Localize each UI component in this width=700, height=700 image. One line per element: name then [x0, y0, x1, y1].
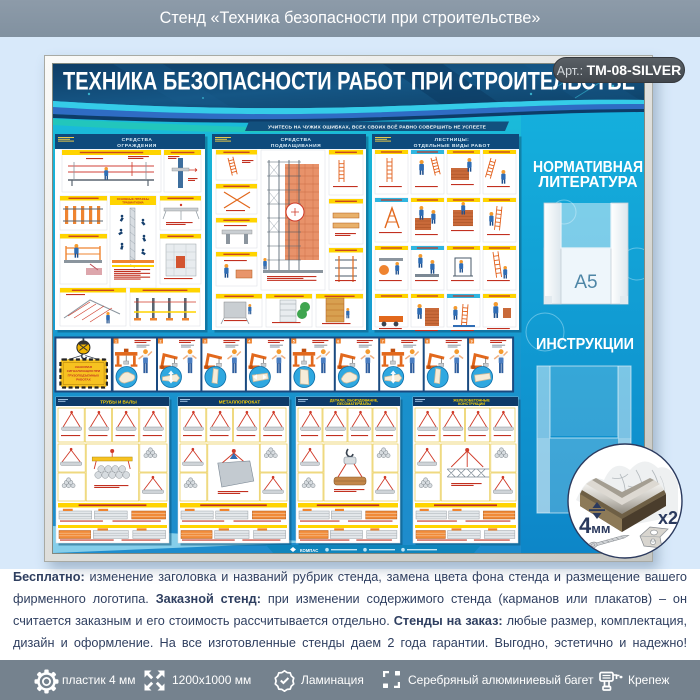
svg-text:ПОДМАЩИВАНИЯ: ПОДМАЩИВАНИЯ [271, 143, 321, 149]
svg-text:1: 1 [115, 339, 117, 343]
svg-text:КОНСТРУКЦИИ: КОНСТРУКЦИИ [458, 402, 485, 406]
svg-text:ЛЕСТНИЦЫ:: ЛЕСТНИЦЫ: [435, 137, 470, 143]
svg-text:ИНСТРУКЦИИ: ИНСТРУКЦИИ [536, 336, 634, 353]
svg-text:УЧИТЕСЬ НА ЧУЖИХ ОШИБКАХ, ВСЕХ: УЧИТЕСЬ НА ЧУЖИХ ОШИБКАХ, ВСЕХ СВОИХ ВСЁ… [268, 124, 487, 131]
svg-text:МЕТАЛЛОПРОКАТ: МЕТАЛЛОПРОКАТ [219, 399, 261, 404]
svg-text:А5: А5 [574, 272, 597, 293]
svg-text:РАБОТАХ: РАБОТАХ [76, 378, 92, 382]
svg-text:6: 6 [337, 339, 339, 343]
svg-text:ЛИТЕРАТУРА: ЛИТЕРАТУРА [539, 174, 638, 191]
svg-text:ТРУБЫ И ВАЛЫ: ТРУБЫ И ВАЛЫ [100, 399, 137, 404]
svg-text:2: 2 [160, 339, 162, 343]
svg-text:СРЕДСТВА: СРЕДСТВА [122, 137, 153, 143]
svg-text:x2: x2 [658, 508, 678, 528]
svg-text:5: 5 [293, 339, 295, 343]
svg-text:9: 9 [471, 339, 473, 343]
svg-text:7: 7 [382, 339, 384, 343]
svg-text:ОГРАЖДЕНИЯ: ОГРАЖДЕНИЯ [117, 143, 157, 149]
svg-text:СРЕДСТВА: СРЕДСТВА [281, 137, 312, 143]
svg-text:ОТДЕЛЬНЫЕ ВИДЫ РАБОТ: ОТДЕЛЬНЫЕ ВИДЫ РАБОТ [414, 143, 491, 149]
svg-text:ТРАВМАТИЗМА: ТРАВМАТИЗМА [122, 201, 143, 205]
svg-text:8: 8 [426, 339, 428, 343]
svg-text:3: 3 [204, 339, 206, 343]
svg-text:КОМПАС: КОМПАС [300, 548, 318, 553]
svg-text:4: 4 [248, 339, 250, 343]
svg-text:ТЕХНИКА БЕЗОПАСНОСТИ РАБОТ ПРИ: ТЕХНИКА БЕЗОПАСНОСТИ РАБОТ ПРИ СТРОИТЕЛЬ… [63, 68, 635, 96]
svg-text:ЛЕСОМАТЕРИАЛЫ: ЛЕСОМАТЕРИАЛЫ [337, 402, 371, 406]
